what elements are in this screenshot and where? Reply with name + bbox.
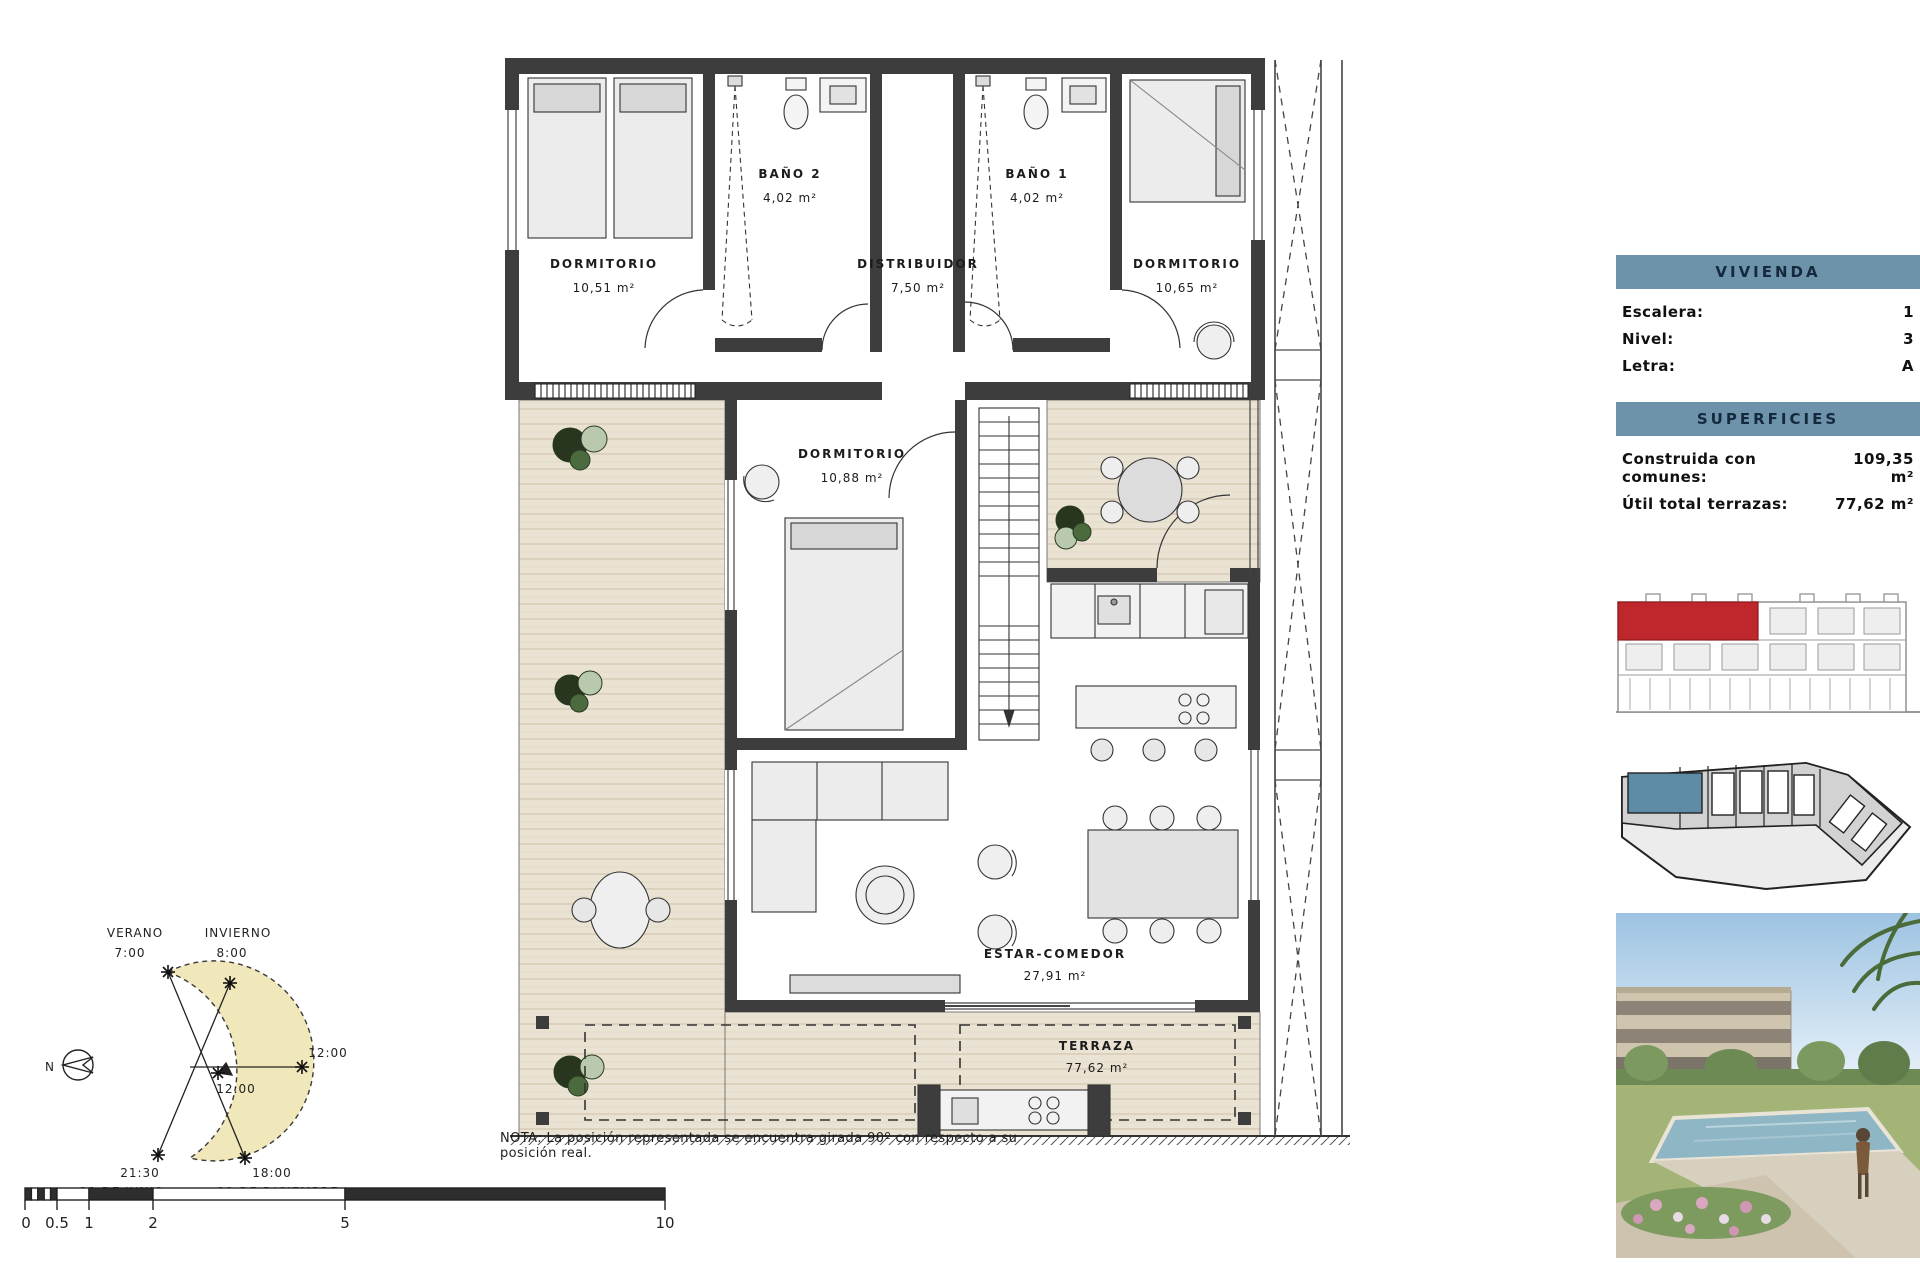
elevation-thumbnail bbox=[1616, 582, 1920, 727]
page: DORMITORIO 10,51 m² BAÑO 2 4,02 m² DISTR… bbox=[0, 0, 1920, 1280]
room-area-distribuidor: 7,50 m² bbox=[891, 281, 945, 295]
kitchen bbox=[1051, 584, 1248, 761]
sun-invierno-time: 8:00 bbox=[217, 946, 248, 960]
field-nivel: Nivel: 3 bbox=[1622, 330, 1914, 348]
area-construida-value: 109,35 m² bbox=[1831, 450, 1914, 486]
info-panel: VIVIENDA Escalera: 1 Nivel: 3 Letra: A S… bbox=[1616, 255, 1920, 1258]
field-nivel-value: 3 bbox=[1903, 330, 1914, 348]
sun-noon-inner: 12:00 bbox=[216, 1082, 256, 1096]
vivienda-fields: Escalera: 1 Nivel: 3 Letra: A bbox=[1616, 289, 1920, 388]
room-label-estar-comedor: ESTAR-COMEDOR bbox=[984, 947, 1126, 961]
field-escalera-label: Escalera: bbox=[1622, 303, 1704, 321]
superficies-fields: Construida con comunes: 109,35 m² Útil t… bbox=[1616, 436, 1920, 526]
room-label-bano2: BAÑO 2 bbox=[758, 166, 821, 181]
room-area-dormitorio-tl: 10,51 m² bbox=[573, 281, 636, 295]
scale-tick-0: 0 bbox=[21, 1214, 31, 1232]
render-photo bbox=[1616, 913, 1920, 1258]
siteplan-thumbnail bbox=[1616, 745, 1920, 895]
floor-plan: DORMITORIO 10,51 m² BAÑO 2 4,02 m² DISTR… bbox=[490, 50, 1410, 1145]
louver-window bbox=[535, 384, 1248, 398]
sun-noon-outer: 12:00 bbox=[308, 1046, 348, 1060]
room-label-terraza: TERRAZA bbox=[1059, 1039, 1135, 1053]
sun-diagram: VERANO 7:00 INVIERNO 8:00 12:00 12:00 21… bbox=[40, 915, 360, 1205]
field-escalera-value: 1 bbox=[1903, 303, 1914, 321]
area-util-label: Útil total terrazas: bbox=[1622, 495, 1788, 513]
field-escalera: Escalera: 1 bbox=[1622, 303, 1914, 321]
room-label-bano1: BAÑO 1 bbox=[1005, 166, 1068, 181]
elevation-chimneys bbox=[1646, 594, 1898, 602]
field-nivel-label: Nivel: bbox=[1622, 330, 1674, 348]
photo-flowers bbox=[1621, 1187, 1791, 1239]
outdoor-kitchen bbox=[918, 1085, 1110, 1136]
north-compass-icon bbox=[63, 1050, 93, 1080]
sun-crescent bbox=[168, 961, 314, 1161]
scale-bar: 0 0.5 1 2 5 10 bbox=[20, 1178, 680, 1238]
lattice-gallery bbox=[1275, 60, 1342, 1136]
room-area-bano2: 4,02 m² bbox=[763, 191, 817, 205]
stairs bbox=[979, 408, 1039, 740]
field-letra-label: Letra: bbox=[1622, 357, 1675, 375]
twin-beds bbox=[528, 78, 692, 238]
area-construida: Construida con comunes: 109,35 m² bbox=[1622, 450, 1914, 486]
scale-tick-1: 1 bbox=[84, 1214, 94, 1232]
scale-bar-segments bbox=[25, 1188, 665, 1210]
sun-verano-label: VERANO bbox=[107, 926, 163, 940]
area-util-value: 77,62 m² bbox=[1835, 495, 1914, 513]
room-label-distribuidor: DISTRIBUIDOR bbox=[857, 257, 979, 271]
room-label-dormitorio-tr: DORMITORIO bbox=[1133, 257, 1241, 271]
bedroom-c-furniture bbox=[744, 465, 903, 730]
room-label-dormitorio-c: DORMITORIO bbox=[798, 447, 906, 461]
room-area-dormitorio-c: 10,88 m² bbox=[821, 471, 884, 485]
room-label-dormitorio-tl: DORMITORIO bbox=[550, 257, 658, 271]
scale-tick-10: 10 bbox=[655, 1214, 674, 1232]
sun-verano-time: 7:00 bbox=[115, 946, 146, 960]
area-util: Útil total terrazas: 77,62 m² bbox=[1622, 495, 1914, 513]
room-area-dormitorio-tr: 10,65 m² bbox=[1156, 281, 1219, 295]
area-construida-label: Construida con comunes: bbox=[1622, 450, 1831, 486]
scale-tick-5: 5 bbox=[340, 1214, 350, 1232]
field-letra-value: A bbox=[1902, 357, 1914, 375]
siteplan-unit-highlight bbox=[1628, 773, 1702, 813]
double-bed-tr bbox=[1130, 80, 1245, 359]
scale-tick-2: 2 bbox=[148, 1214, 158, 1232]
superficies-header: SUPERFICIES bbox=[1616, 402, 1920, 436]
orientation-note: NOTA: La posición representada se encuen… bbox=[500, 1131, 1060, 1161]
sun-invierno-label: INVIERNO bbox=[205, 926, 272, 940]
field-letra: Letra: A bbox=[1622, 357, 1914, 375]
vivienda-header: VIVIENDA bbox=[1616, 255, 1920, 289]
sun-north-label: N bbox=[45, 1060, 55, 1074]
room-area-estar-comedor: 27,91 m² bbox=[1024, 969, 1087, 983]
room-area-terraza: 77,62 m² bbox=[1066, 1061, 1129, 1075]
elevation-unit-highlight bbox=[1618, 602, 1758, 640]
room-area-bano1: 4,02 m² bbox=[1010, 191, 1064, 205]
scale-tick-05: 0.5 bbox=[45, 1214, 69, 1232]
